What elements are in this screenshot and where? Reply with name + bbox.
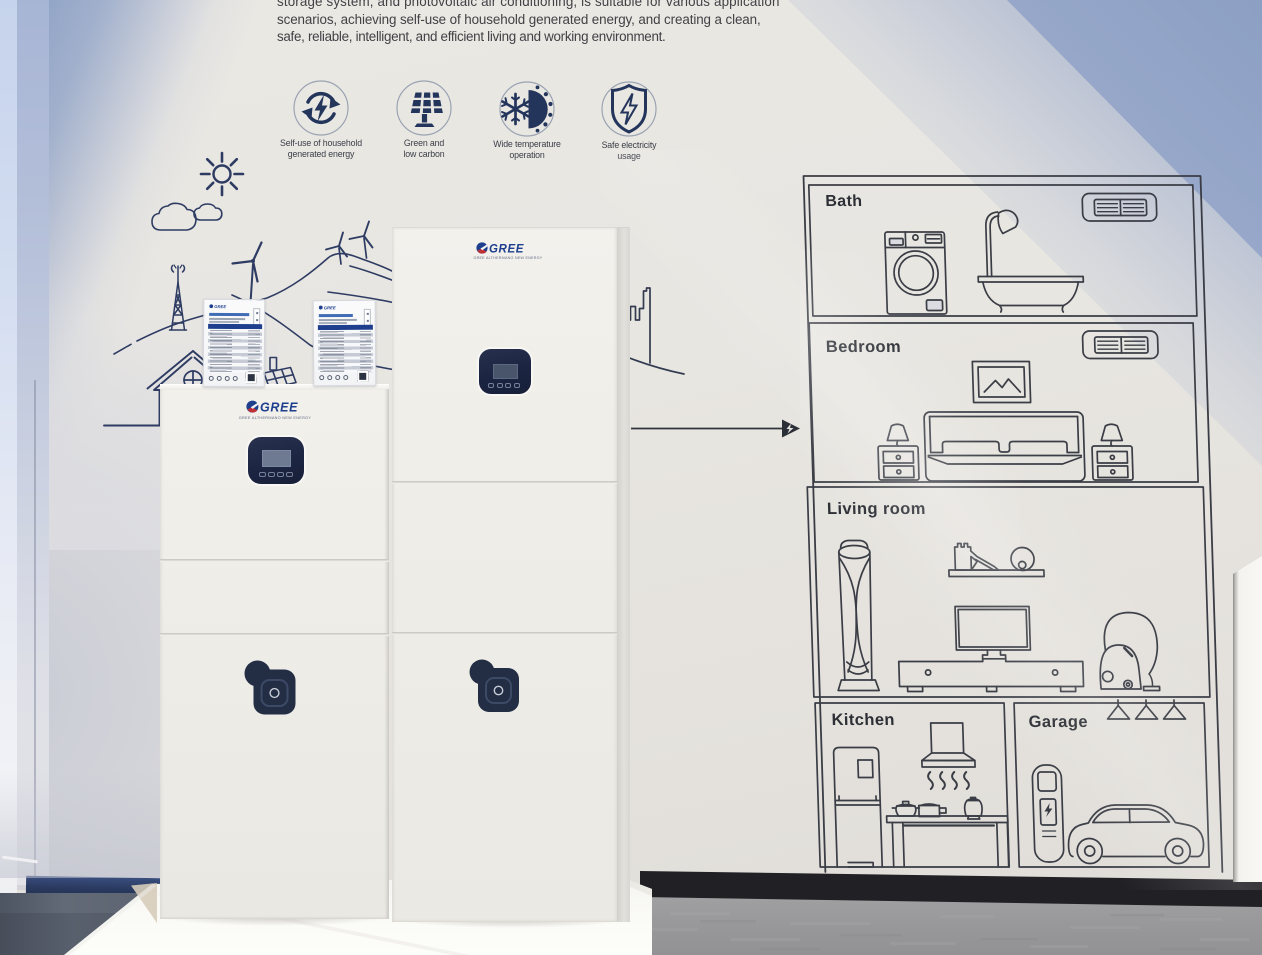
- svg-text:Bath: Bath: [825, 193, 863, 210]
- svg-text:Kitchen: Kitchen: [831, 711, 895, 729]
- svg-text:GREE: GREE: [324, 305, 336, 310]
- svg-text:Living room: Living room: [827, 500, 926, 518]
- svg-text:GREE: GREE: [489, 244, 524, 256]
- svg-text:GREE: GREE: [260, 400, 298, 414]
- svg-text:GREE: GREE: [214, 304, 226, 309]
- svg-text:Garage: Garage: [1028, 713, 1088, 731]
- svg-text:Bedroom: Bedroom: [826, 338, 902, 356]
